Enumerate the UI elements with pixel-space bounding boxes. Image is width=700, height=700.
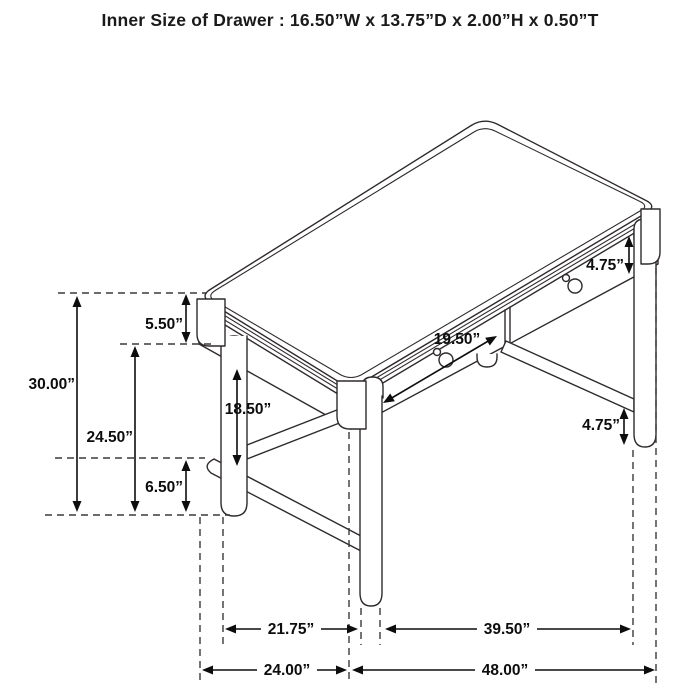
dim-overall-width: 48.00” [352, 660, 655, 679]
dim-overall-height: 30.00” [28, 296, 81, 512]
corner-bracket-front [337, 381, 366, 429]
drawer-knob-left-ring-icon [434, 349, 441, 356]
dim-label-side-clearance: 18.50” [225, 401, 272, 418]
drawer-knob-left-icon [439, 353, 453, 367]
dim-label-drawer-front-width: 19.50” [434, 331, 481, 348]
dim-label-apron-height-right: 4.75” [586, 257, 624, 274]
dim-label-stretcher-floor-gap: 6.50” [145, 479, 183, 496]
desk-line-drawing: 30.00” 24.50” 5.50” 6.50” 18.50” [0, 0, 700, 700]
dim-stretcher-height-right: 4.75” [582, 408, 628, 445]
dim-label-overall-height: 30.00” [28, 376, 75, 393]
dim-label-leg-span-side: 21.75” [268, 621, 315, 638]
dim-underdesk-clearance: 24.50” [86, 346, 139, 512]
dim-leg-span-front: 39.50” [385, 619, 631, 638]
dim-label-overall-depth: 24.00” [264, 662, 311, 679]
dim-leg-span-side: 21.75” [225, 619, 358, 638]
side-stretcher-right [501, 341, 634, 412]
diagram-canvas: Inner Size of Drawer : 16.50”W x 13.75”D… [0, 0, 700, 700]
dim-label-overall-width: 48.00” [482, 662, 529, 679]
corner-bracket-left [197, 299, 225, 346]
dim-desktop-edge-height: 5.50” [145, 294, 190, 343]
dim-label-desktop-edge-height: 5.50” [145, 316, 183, 333]
leg-left [221, 336, 247, 516]
back-leg-tip [477, 354, 497, 367]
dim-label-underdesk-clearance: 24.50” [86, 429, 133, 446]
drawer-knob-right-ring-icon [563, 275, 570, 282]
dim-label-stretcher-height-right: 4.75” [582, 417, 620, 434]
corner-bracket-right [641, 209, 660, 264]
dim-overall-depth: 24.00” [202, 660, 347, 679]
dim-label-leg-span-front: 39.50” [484, 621, 531, 638]
drawer-knob-right-icon [568, 279, 582, 293]
dim-stretcher-floor-gap: 6.50” [145, 460, 190, 512]
